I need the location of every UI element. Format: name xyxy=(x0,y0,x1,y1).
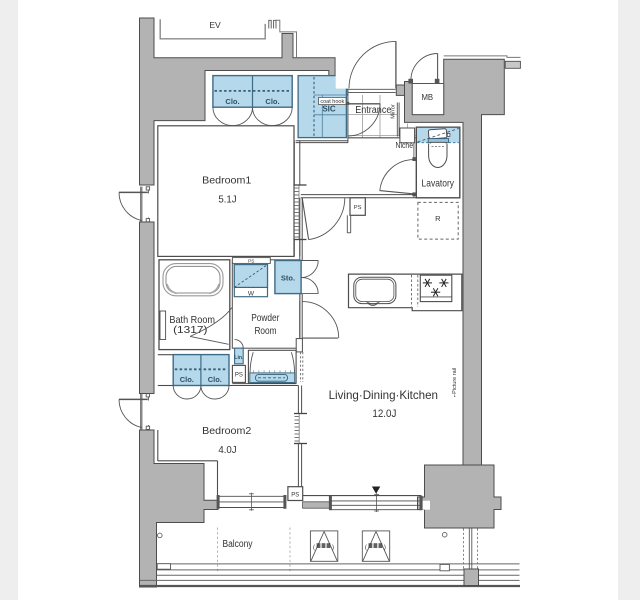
svg-text:PS: PS xyxy=(235,373,243,379)
svg-text:Room: Room xyxy=(254,326,276,337)
svg-text:): ) xyxy=(384,545,386,551)
svg-text:Clo.: Clo. xyxy=(180,375,194,384)
svg-text:PS: PS xyxy=(248,259,254,265)
svg-text:12.0J: 12.0J xyxy=(372,408,396,420)
svg-text:Living·Dining·Kitchen: Living·Dining·Kitchen xyxy=(329,388,438,402)
svg-text:5.1J: 5.1J xyxy=(218,194,236,206)
svg-text:MB: MB xyxy=(421,93,433,102)
svg-text:(: ( xyxy=(365,545,367,551)
svg-text:): ) xyxy=(332,545,334,551)
svg-text:EV: EV xyxy=(209,20,221,30)
svg-text:Niche: Niche xyxy=(396,141,414,150)
svg-text:Sto.: Sto. xyxy=(281,274,295,283)
svg-text:Clo.: Clo. xyxy=(208,375,222,384)
svg-text:Bedroom2: Bedroom2 xyxy=(202,425,251,437)
svg-text:PS: PS xyxy=(291,493,299,499)
svg-text:Mirror: Mirror xyxy=(391,104,397,119)
svg-text:Clo.: Clo. xyxy=(225,97,239,106)
svg-text:Lavatory: Lavatory xyxy=(422,178,455,190)
svg-text:Balcony: Balcony xyxy=(222,539,252,550)
svg-text:(: ( xyxy=(313,545,315,551)
svg-text:PS: PS xyxy=(354,205,362,211)
svg-text:Bedroom1: Bedroom1 xyxy=(202,175,251,187)
svg-text:Lin.: Lin. xyxy=(234,355,244,361)
svg-text:R: R xyxy=(435,214,441,223)
svg-text:W: W xyxy=(248,291,255,298)
svg-text:SIC: SIC xyxy=(322,105,336,114)
svg-text:Clo.: Clo. xyxy=(265,97,279,106)
svg-text:Powder: Powder xyxy=(251,313,280,324)
svg-text:4.0J: 4.0J xyxy=(218,444,236,456)
svg-text:⌐Picture rail: ⌐Picture rail xyxy=(452,368,458,397)
svg-text:Entrance: Entrance xyxy=(355,105,391,116)
